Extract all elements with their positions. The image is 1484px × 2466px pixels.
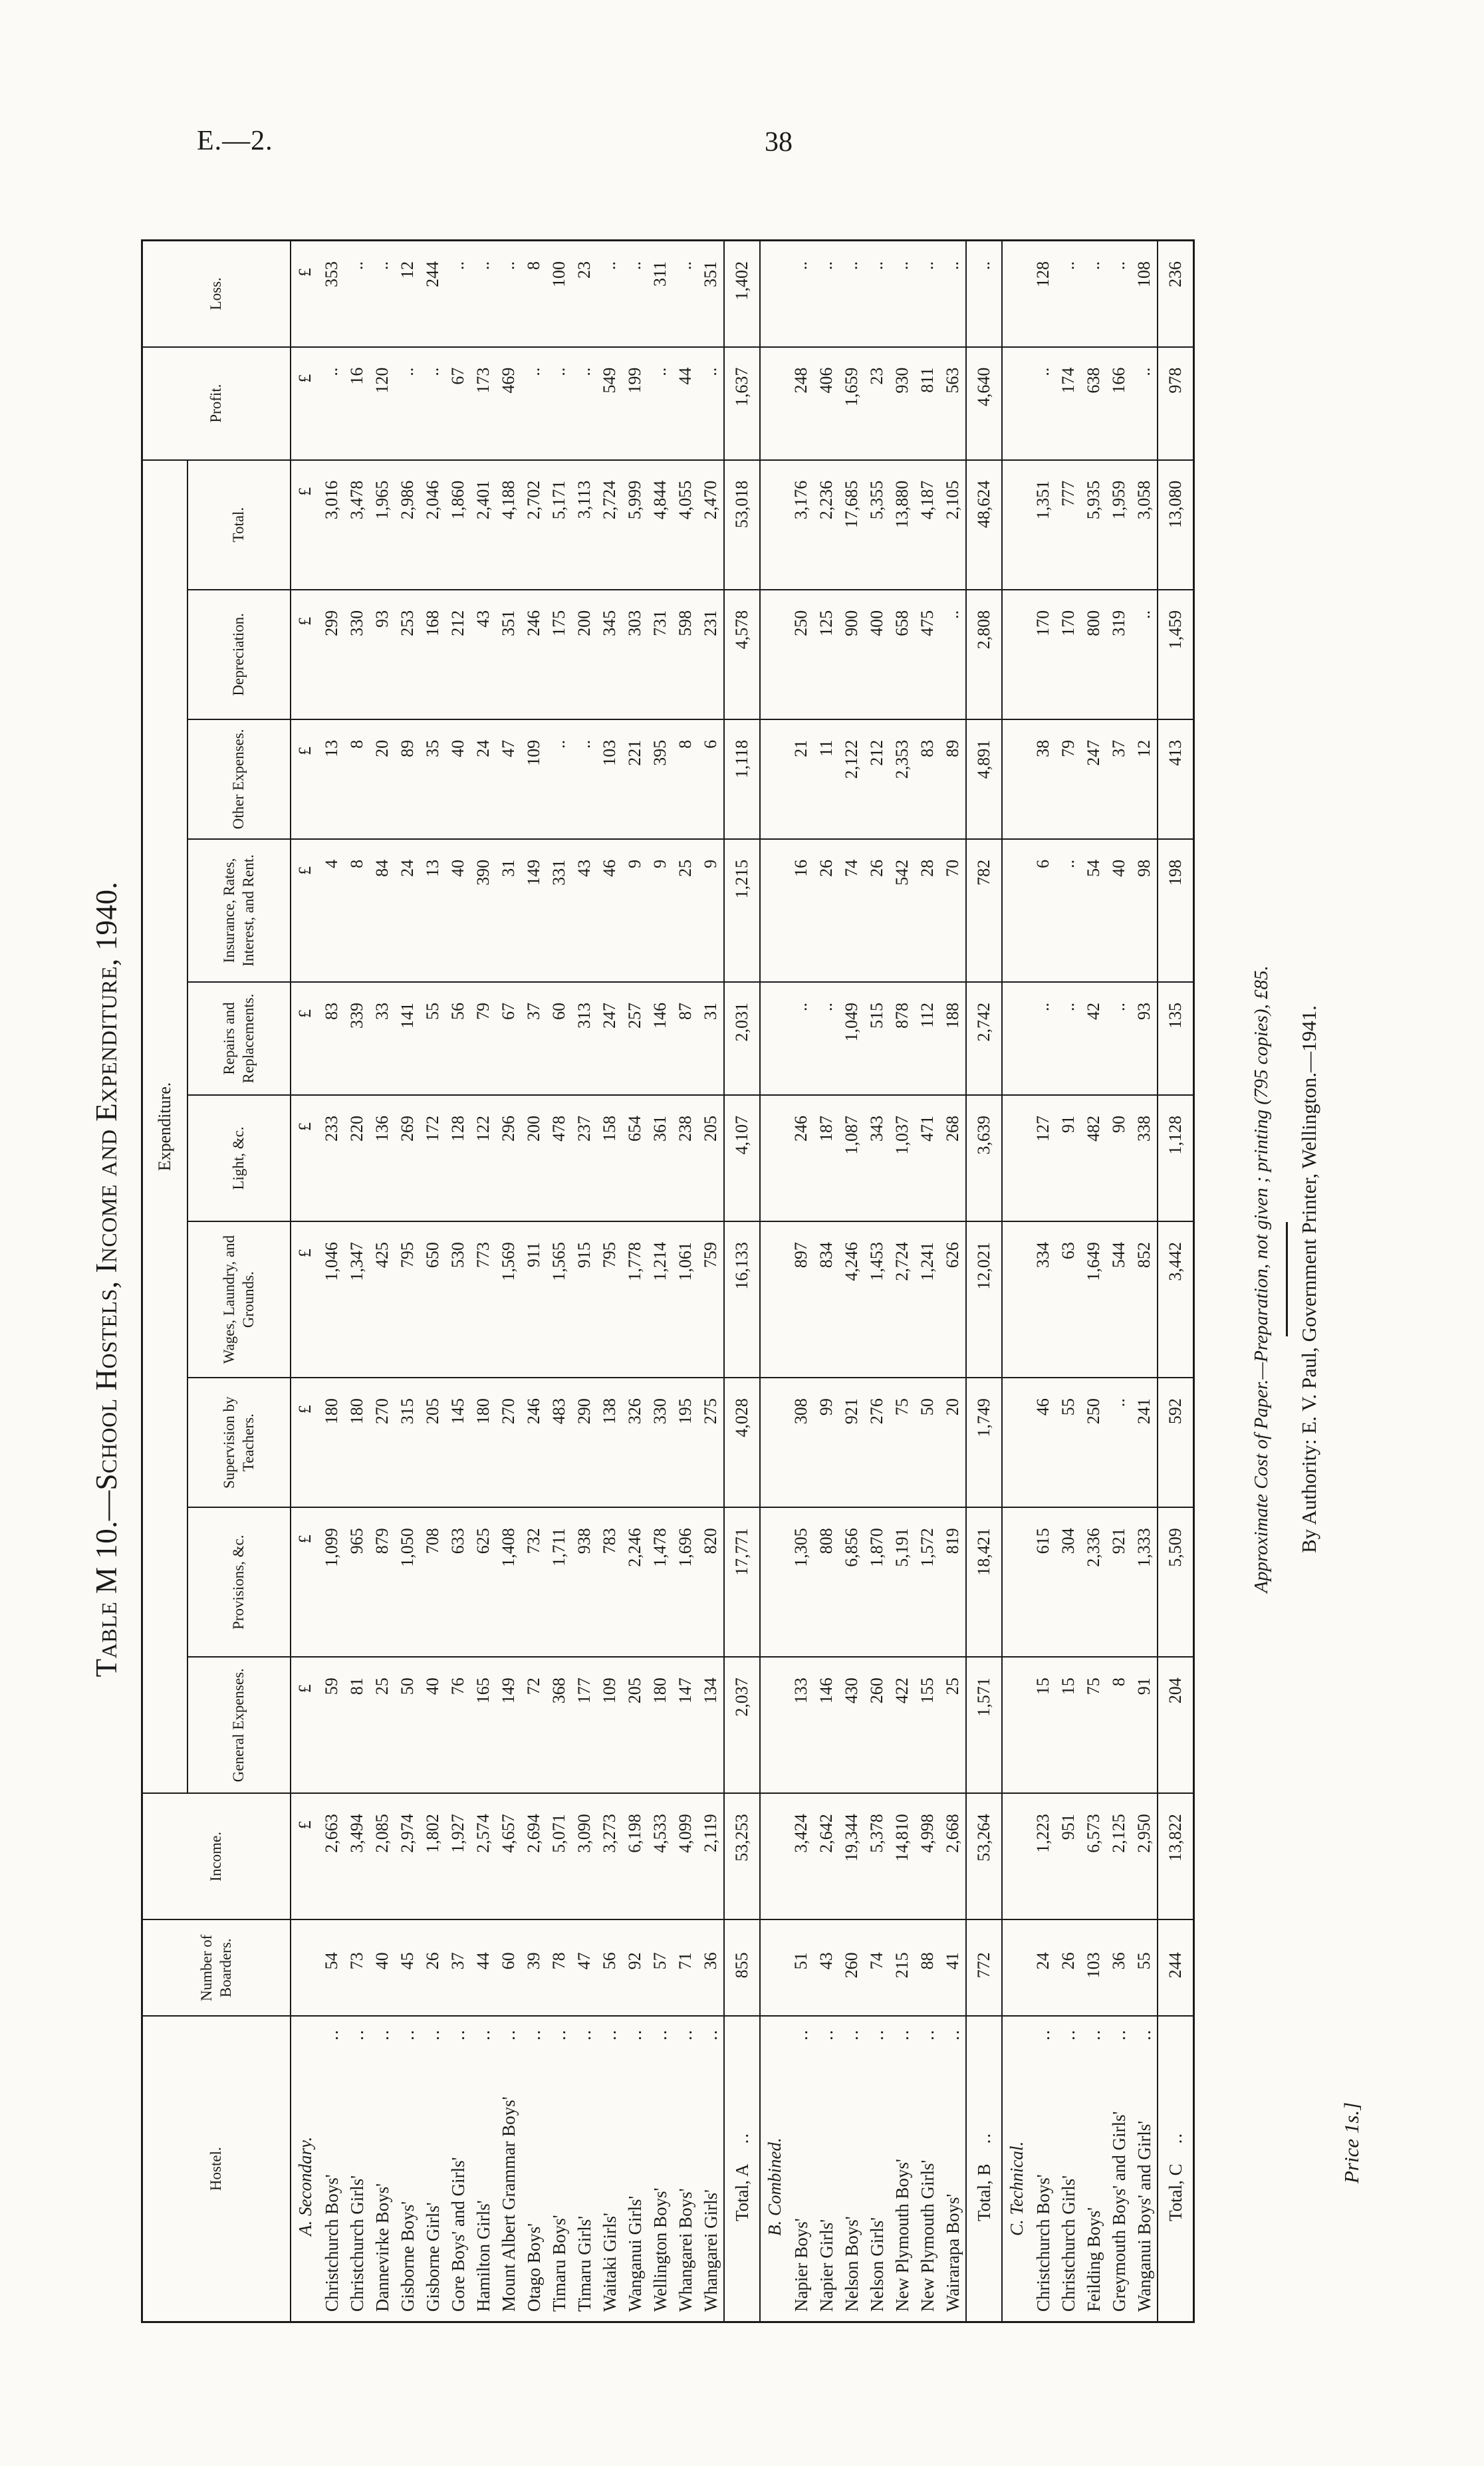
- value-cell: 482: [1081, 1095, 1106, 1221]
- hostel-name-cell: Timaru Girls'..: [572, 2016, 597, 2322]
- col-header-depreciation: Depreciation.: [187, 590, 291, 719]
- leader-dots: ..: [1109, 2029, 1130, 2040]
- leader-dots: ..: [1058, 2029, 1079, 2040]
- value-cell: 598: [673, 590, 698, 719]
- value-cell: 2,574: [471, 1793, 496, 1919]
- hostel-name: Gisborne Girls': [423, 2202, 443, 2312]
- value-cell: 149: [496, 1657, 521, 1793]
- value-cell: 199: [622, 347, 648, 460]
- col-header-hostel: Hostel.: [142, 2016, 291, 2322]
- value-cell: 549: [597, 347, 622, 460]
- value-cell: 175: [547, 590, 572, 719]
- value-cell: 4,844: [648, 460, 673, 590]
- value-cell: 50: [395, 1657, 420, 1793]
- currency-symbol-cell: £: [291, 1507, 319, 1657]
- value-cell: 3,090: [572, 1793, 597, 1919]
- value-cell: 145: [445, 1378, 471, 1507]
- value-cell: 250: [789, 590, 814, 719]
- hostel-name: Nelson Boys': [842, 2216, 862, 2312]
- section-heading-row: C. Technical.: [1002, 241, 1031, 2322]
- value-cell: 122: [471, 1095, 496, 1221]
- value-cell: 2,950: [1132, 1793, 1158, 1919]
- value-cell: 46: [597, 839, 622, 982]
- value-cell: 879: [370, 1507, 395, 1657]
- value-cell: 14,810: [890, 1793, 915, 1919]
- total-value-cell: 1,459: [1158, 590, 1194, 719]
- value-cell: 13: [420, 839, 445, 982]
- value-cell: 1,214: [648, 1221, 673, 1378]
- table-row: Hamilton Girls'..442,5741656251807731227…: [471, 241, 496, 2322]
- value-cell: 811: [915, 347, 940, 460]
- value-cell: 276: [864, 1378, 890, 1507]
- table-row: Waitaki Girls'..563,27310978313879515824…: [597, 241, 622, 2322]
- value-cell: ..: [319, 347, 344, 460]
- value-cell: 41: [940, 1919, 966, 2016]
- hostel-name: Nelson Girls': [867, 2217, 888, 2312]
- value-cell: 290: [572, 1378, 597, 1507]
- value-cell: 1,305: [789, 1507, 814, 1657]
- value-cell: ..: [1056, 839, 1081, 982]
- value-cell: 4,099: [673, 1793, 698, 1919]
- value-cell: 238: [673, 1095, 698, 1221]
- col-header-boarders: Number of Boarders.: [142, 1919, 291, 2016]
- empty-cell: [760, 590, 789, 719]
- value-cell: ..: [864, 241, 890, 347]
- value-cell: 6: [1031, 839, 1056, 982]
- value-cell: 147: [673, 1657, 698, 1793]
- total-row: Total, C..24413,8222045,5095923,4421,128…: [1158, 241, 1194, 2322]
- total-value-cell: 53,264: [966, 1793, 1002, 1919]
- total-value-cell: 13,822: [1158, 1793, 1194, 1919]
- col-header-provisions: Provisions, &c.: [187, 1507, 291, 1657]
- value-cell: 109: [597, 1657, 622, 1793]
- leader-dots: ..: [448, 2029, 469, 2040]
- value-cell: 260: [839, 1919, 864, 2016]
- hostel-name: Dannevirke Boys': [372, 2183, 393, 2312]
- value-cell: 4,998: [915, 1793, 940, 1919]
- table-row: Gisborne Girls'..261,8024070820565017255…: [420, 241, 445, 2322]
- value-cell: 180: [648, 1657, 673, 1793]
- total-value-cell: 53,253: [724, 1793, 760, 1919]
- total-value-cell: 3,639: [966, 1095, 1002, 1221]
- value-cell: 74: [839, 839, 864, 982]
- value-cell: 120: [370, 347, 395, 460]
- value-cell: 25: [940, 1657, 966, 1793]
- value-cell: 146: [648, 982, 673, 1095]
- value-cell: 174: [1056, 347, 1081, 460]
- total-value-cell: 2,808: [966, 590, 1002, 719]
- empty-cell: [760, 241, 789, 347]
- empty-cell: [760, 1657, 789, 1793]
- value-cell: 54: [319, 1919, 344, 2016]
- value-cell: 1,061: [673, 1221, 698, 1378]
- total-value-cell: 48,624: [966, 460, 1002, 590]
- hostel-name-cell: Christchurch Girls'..: [1056, 2016, 1081, 2322]
- value-cell: 103: [1081, 1919, 1106, 2016]
- empty-cell: [760, 719, 789, 839]
- value-cell: 304: [1056, 1507, 1081, 1657]
- value-cell: 1,241: [915, 1221, 940, 1378]
- value-cell: 3,176: [789, 460, 814, 590]
- value-cell: 200: [572, 590, 597, 719]
- section-heading: C. Technical.: [1002, 2016, 1031, 2322]
- total-label-cell: Total, B..: [966, 2016, 1002, 2322]
- price-note: Price 1s.]: [1340, 235, 1364, 2323]
- value-cell: ..: [395, 347, 420, 460]
- empty-cell: [1002, 347, 1031, 460]
- value-cell: 28: [915, 839, 940, 982]
- rotated-table-region: Table M 10.—School Hostels, Income and E…: [89, 213, 1406, 2300]
- value-cell: 542: [890, 839, 915, 982]
- value-cell: 330: [648, 1378, 673, 1507]
- value-cell: 2,724: [597, 460, 622, 590]
- value-cell: 9: [648, 839, 673, 982]
- value-cell: 3,273: [597, 1793, 622, 1919]
- value-cell: 170: [1056, 590, 1081, 719]
- hostel-name: Christchurch Girls': [347, 2175, 368, 2312]
- table-row: Feilding Boys'..1036,573752,3362501,6494…: [1081, 241, 1106, 2322]
- value-cell: 158: [597, 1095, 622, 1221]
- value-cell: 39: [521, 1919, 547, 2016]
- hostel-name-cell: Hamilton Girls'..: [471, 2016, 496, 2322]
- value-cell: ..: [940, 241, 966, 347]
- hostel-name: Wairarapa Boys': [943, 2194, 963, 2312]
- value-cell: 1,049: [839, 982, 864, 1095]
- currency-symbol-cell: £: [291, 1793, 319, 1919]
- total-value-cell: ..: [966, 241, 1002, 347]
- value-cell: 40: [370, 1919, 395, 2016]
- value-cell: 47: [572, 1919, 597, 2016]
- value-cell: 422: [890, 1657, 915, 1793]
- value-cell: ..: [547, 347, 572, 460]
- value-cell: 70: [940, 839, 966, 982]
- value-cell: 37: [1106, 719, 1132, 839]
- value-cell: 2,663: [319, 1793, 344, 1919]
- total-label: Total, B: [974, 2163, 994, 2221]
- value-cell: 965: [344, 1507, 370, 1657]
- value-cell: 79: [471, 982, 496, 1095]
- value-cell: 55: [1132, 1919, 1158, 2016]
- total-value-cell: 2,031: [724, 982, 760, 1095]
- value-cell: 2,105: [940, 460, 966, 590]
- value-cell: 168: [420, 590, 445, 719]
- value-cell: 75: [890, 1378, 915, 1507]
- value-cell: 308: [789, 1378, 814, 1507]
- value-cell: 783: [597, 1507, 622, 1657]
- value-cell: 2,336: [1081, 1507, 1106, 1657]
- value-cell: 1,565: [547, 1221, 572, 1378]
- total-value-cell: 4,578: [724, 590, 760, 719]
- value-cell: 26: [1056, 1919, 1081, 2016]
- leader-dots: ..: [867, 2029, 888, 2040]
- table-row: Wanganui Girls'..926,1982052,2463261,778…: [622, 241, 648, 2322]
- total-value-cell: 4,640: [966, 347, 1002, 460]
- value-cell: ..: [572, 347, 597, 460]
- hostel-name: Gisborne Boys': [398, 2201, 418, 2312]
- total-value-cell: 135: [1158, 982, 1194, 1095]
- section-heading-row: A. Secondary.£££££££££££££: [291, 241, 319, 2322]
- table-title: Table M 10.—School Hostels, Income and E…: [89, 235, 124, 2323]
- value-cell: 2,702: [521, 460, 547, 590]
- value-cell: 425: [370, 1221, 395, 1378]
- value-cell: 43: [572, 839, 597, 982]
- col-header-repairs: Repairs and Replacements.: [187, 982, 291, 1095]
- total-value-cell: 592: [1158, 1378, 1194, 1507]
- value-cell: ..: [1056, 241, 1081, 347]
- table-row: Greymouth Boys' and Girls'..362,1258921.…: [1106, 241, 1132, 2322]
- total-value-cell: 413: [1158, 719, 1194, 839]
- value-cell: ..: [597, 241, 622, 347]
- value-cell: 231: [698, 590, 724, 719]
- empty-cell: [1002, 1919, 1031, 2016]
- value-cell: 430: [839, 1657, 864, 1793]
- value-cell: 125: [814, 590, 839, 719]
- hostel-name-cell: Gisborne Boys'..: [395, 2016, 420, 2322]
- value-cell: 51: [789, 1919, 814, 2016]
- value-cell: 31: [496, 839, 521, 982]
- hostel-name: Whangarei Boys': [676, 2188, 696, 2312]
- value-cell: 46: [1031, 1378, 1056, 1507]
- empty-cell: [760, 1793, 789, 1919]
- leader-dots: ..: [732, 2132, 752, 2144]
- value-cell: 40: [1106, 839, 1132, 982]
- value-cell: ..: [915, 241, 940, 347]
- hostel-name-cell: Napier Girls'..: [814, 2016, 839, 2322]
- value-cell: 900: [839, 590, 864, 719]
- col-header-light: Light, &c.: [187, 1095, 291, 1221]
- value-cell: 930: [890, 347, 915, 460]
- leader-dots: ..: [423, 2029, 443, 2040]
- hostel-name: Timaru Boys': [549, 2215, 570, 2312]
- hostel-name-cell: Whangarei Girls'..: [698, 2016, 724, 2322]
- value-cell: 800: [1081, 590, 1106, 719]
- value-cell: 177: [572, 1657, 597, 1793]
- value-cell: 303: [622, 590, 648, 719]
- value-cell: 368: [547, 1657, 572, 1793]
- hostel-name: New Plymouth Girls': [918, 2160, 938, 2312]
- value-cell: 37: [445, 1919, 471, 2016]
- currency-symbol-cell: £: [291, 1378, 319, 1507]
- value-cell: ..: [1031, 347, 1056, 460]
- empty-cell: [760, 347, 789, 460]
- value-cell: 311: [648, 241, 673, 347]
- document-reference: E.—2.: [197, 125, 273, 157]
- value-cell: 1,569: [496, 1221, 521, 1378]
- value-cell: 23: [864, 347, 890, 460]
- value-cell: 2,401: [471, 460, 496, 590]
- value-cell: 91: [1132, 1657, 1158, 1793]
- value-cell: 237: [572, 1095, 597, 1221]
- value-cell: 205: [622, 1657, 648, 1793]
- value-cell: 334: [1031, 1221, 1056, 1378]
- value-cell: ..: [420, 347, 445, 460]
- value-cell: 4,187: [915, 460, 940, 590]
- total-label: Total, A: [732, 2163, 752, 2221]
- col-header-income: Income.: [142, 1793, 291, 1919]
- value-cell: 195: [673, 1378, 698, 1507]
- value-cell: 5,935: [1081, 460, 1106, 590]
- section-heading: B. Combined.: [760, 2016, 789, 2322]
- value-cell: 170: [1031, 590, 1056, 719]
- value-cell: 155: [915, 1657, 940, 1793]
- value-cell: 2,470: [698, 460, 724, 590]
- table-row: Nelson Boys'..26019,3444306,8569214,2461…: [839, 241, 864, 2322]
- table-row: Christchurch Boys'..241,2231561546334127…: [1031, 241, 1056, 2322]
- hostel-name: Napier Girls': [816, 2219, 837, 2312]
- value-cell: 20: [370, 719, 395, 839]
- leader-dots: ..: [499, 2029, 519, 2040]
- value-cell: 26: [814, 839, 839, 982]
- value-cell: 44: [471, 1919, 496, 2016]
- value-cell: 1,659: [839, 347, 864, 460]
- total-value-cell: 1,215: [724, 839, 760, 982]
- value-cell: 79: [1056, 719, 1081, 839]
- empty-cell: [291, 1919, 319, 2016]
- leader-dots: ..: [1134, 2029, 1155, 2040]
- hostel-name: Feilding Boys': [1084, 2207, 1104, 2312]
- landscape-content: Table M 10.—School Hostels, Income and E…: [89, 235, 1406, 2323]
- value-cell: 220: [344, 1095, 370, 1221]
- table-row: Christchurch Boys'..542,663591,0991801,0…: [319, 241, 344, 2322]
- leader-dots: ..: [347, 2029, 368, 2040]
- value-cell: 75: [1081, 1657, 1106, 1793]
- value-cell: 2,119: [698, 1793, 724, 1919]
- hostel-name-cell: Mount Albert Grammar Boys'..: [496, 2016, 521, 2322]
- value-cell: 83: [319, 982, 344, 1095]
- value-cell: ..: [1132, 347, 1158, 460]
- empty-cell: [1002, 241, 1031, 347]
- value-cell: 5,999: [622, 460, 648, 590]
- hostel-name-cell: New Plymouth Boys'..: [890, 2016, 915, 2322]
- value-cell: 625: [471, 1507, 496, 1657]
- hostel-name-cell: Napier Boys'..: [789, 2016, 814, 2322]
- value-cell: 2,724: [890, 1221, 915, 1378]
- empty-cell: [1002, 839, 1031, 982]
- value-cell: 4,188: [496, 460, 521, 590]
- value-cell: 5,355: [864, 460, 890, 590]
- total-value-cell: 1,128: [1158, 1095, 1194, 1221]
- value-cell: 2,353: [890, 719, 915, 839]
- value-cell: 773: [471, 1221, 496, 1378]
- value-cell: 1,333: [1132, 1507, 1158, 1657]
- total-value-cell: 244: [1158, 1919, 1194, 2016]
- col-header-total: Total.: [187, 460, 291, 590]
- value-cell: 326: [622, 1378, 648, 1507]
- value-cell: 12: [395, 241, 420, 347]
- value-cell: 8: [1106, 1657, 1132, 1793]
- value-cell: 55: [420, 982, 445, 1095]
- leader-dots: ..: [918, 2029, 938, 2040]
- value-cell: 2,085: [370, 1793, 395, 1919]
- value-cell: 1,802: [420, 1793, 445, 1919]
- value-cell: 8: [521, 241, 547, 347]
- value-cell: 339: [344, 982, 370, 1095]
- value-cell: 241: [1132, 1378, 1158, 1507]
- value-cell: 72: [521, 1657, 547, 1793]
- value-cell: 35: [420, 719, 445, 839]
- value-cell: ..: [890, 241, 915, 347]
- value-cell: 59: [319, 1657, 344, 1793]
- value-cell: 205: [420, 1378, 445, 1507]
- value-cell: 1,408: [496, 1507, 521, 1657]
- hostel-name-cell: New Plymouth Girls'..: [915, 2016, 940, 2322]
- value-cell: 395: [648, 719, 673, 839]
- value-cell: 31: [698, 982, 724, 1095]
- empty-cell: [760, 1507, 789, 1657]
- value-cell: ..: [1106, 982, 1132, 1095]
- col-header-wages-laundry: Wages, Laundry, and Grounds.: [187, 1221, 291, 1378]
- value-cell: 351: [698, 241, 724, 347]
- value-cell: 708: [420, 1507, 445, 1657]
- value-cell: 3,424: [789, 1793, 814, 1919]
- total-label: Total, C: [1166, 2163, 1185, 2221]
- table-row: New Plymouth Boys'..21514,8104225,191752…: [890, 241, 915, 2322]
- value-cell: 38: [1031, 719, 1056, 839]
- value-cell: 268: [940, 1095, 966, 1221]
- currency-symbol-cell: £: [291, 590, 319, 719]
- table-row: Dannevirke Boys'..402,085258792704251363…: [370, 241, 395, 2322]
- value-cell: 200: [521, 1095, 547, 1221]
- value-cell: 25: [673, 839, 698, 982]
- value-cell: 808: [814, 1507, 839, 1657]
- value-cell: 4: [319, 839, 344, 982]
- total-value-cell: 53,018: [724, 460, 760, 590]
- value-cell: 11: [814, 719, 839, 839]
- leader-dots: ..: [524, 2029, 545, 2040]
- value-cell: 2,986: [395, 460, 420, 590]
- value-cell: 1,099: [319, 1507, 344, 1657]
- value-cell: 2,694: [521, 1793, 547, 1919]
- value-cell: 795: [597, 1221, 622, 1378]
- value-cell: 149: [521, 839, 547, 982]
- currency-symbol-cell: £: [291, 347, 319, 460]
- value-cell: 4,657: [496, 1793, 521, 1919]
- hostel-name: Wanganui Boys' and Girls': [1134, 2121, 1155, 2312]
- leader-dots: ..: [842, 2029, 862, 2040]
- value-cell: 921: [839, 1378, 864, 1507]
- hostel-name: Mount Albert Grammar Boys': [499, 2096, 519, 2312]
- table-row: Gisborne Boys'..452,974501,0503157952691…: [395, 241, 420, 2322]
- value-cell: 172: [420, 1095, 445, 1221]
- total-value-cell: 2,742: [966, 982, 1002, 1095]
- value-cell: 60: [547, 982, 572, 1095]
- empty-cell: [760, 1378, 789, 1507]
- value-cell: 530: [445, 1221, 471, 1378]
- value-cell: ..: [940, 590, 966, 719]
- value-cell: 212: [445, 590, 471, 719]
- leader-dots: ..: [791, 2029, 812, 2040]
- value-cell: 269: [395, 1095, 420, 1221]
- value-cell: 6,856: [839, 1507, 864, 1657]
- total-row: Total, A..85553,2532,03717,7714,02816,13…: [724, 241, 760, 2322]
- value-cell: 911: [521, 1221, 547, 1378]
- value-cell: 483: [547, 1378, 572, 1507]
- value-cell: 4,055: [673, 460, 698, 590]
- value-cell: 136: [370, 1095, 395, 1221]
- value-cell: 1,347: [344, 1221, 370, 1378]
- value-cell: 257: [622, 982, 648, 1095]
- hostel-name-cell: Feilding Boys'..: [1081, 2016, 1106, 2322]
- value-cell: 250: [1081, 1378, 1106, 1507]
- col-header-supervision: Supervision by Teachers.: [187, 1378, 291, 1507]
- value-cell: 108: [1132, 241, 1158, 347]
- value-cell: ..: [1056, 982, 1081, 1095]
- value-cell: 60: [496, 1919, 521, 2016]
- value-cell: 1,870: [864, 1507, 890, 1657]
- value-cell: 24: [395, 839, 420, 982]
- value-cell: 89: [395, 719, 420, 839]
- value-cell: 759: [698, 1221, 724, 1378]
